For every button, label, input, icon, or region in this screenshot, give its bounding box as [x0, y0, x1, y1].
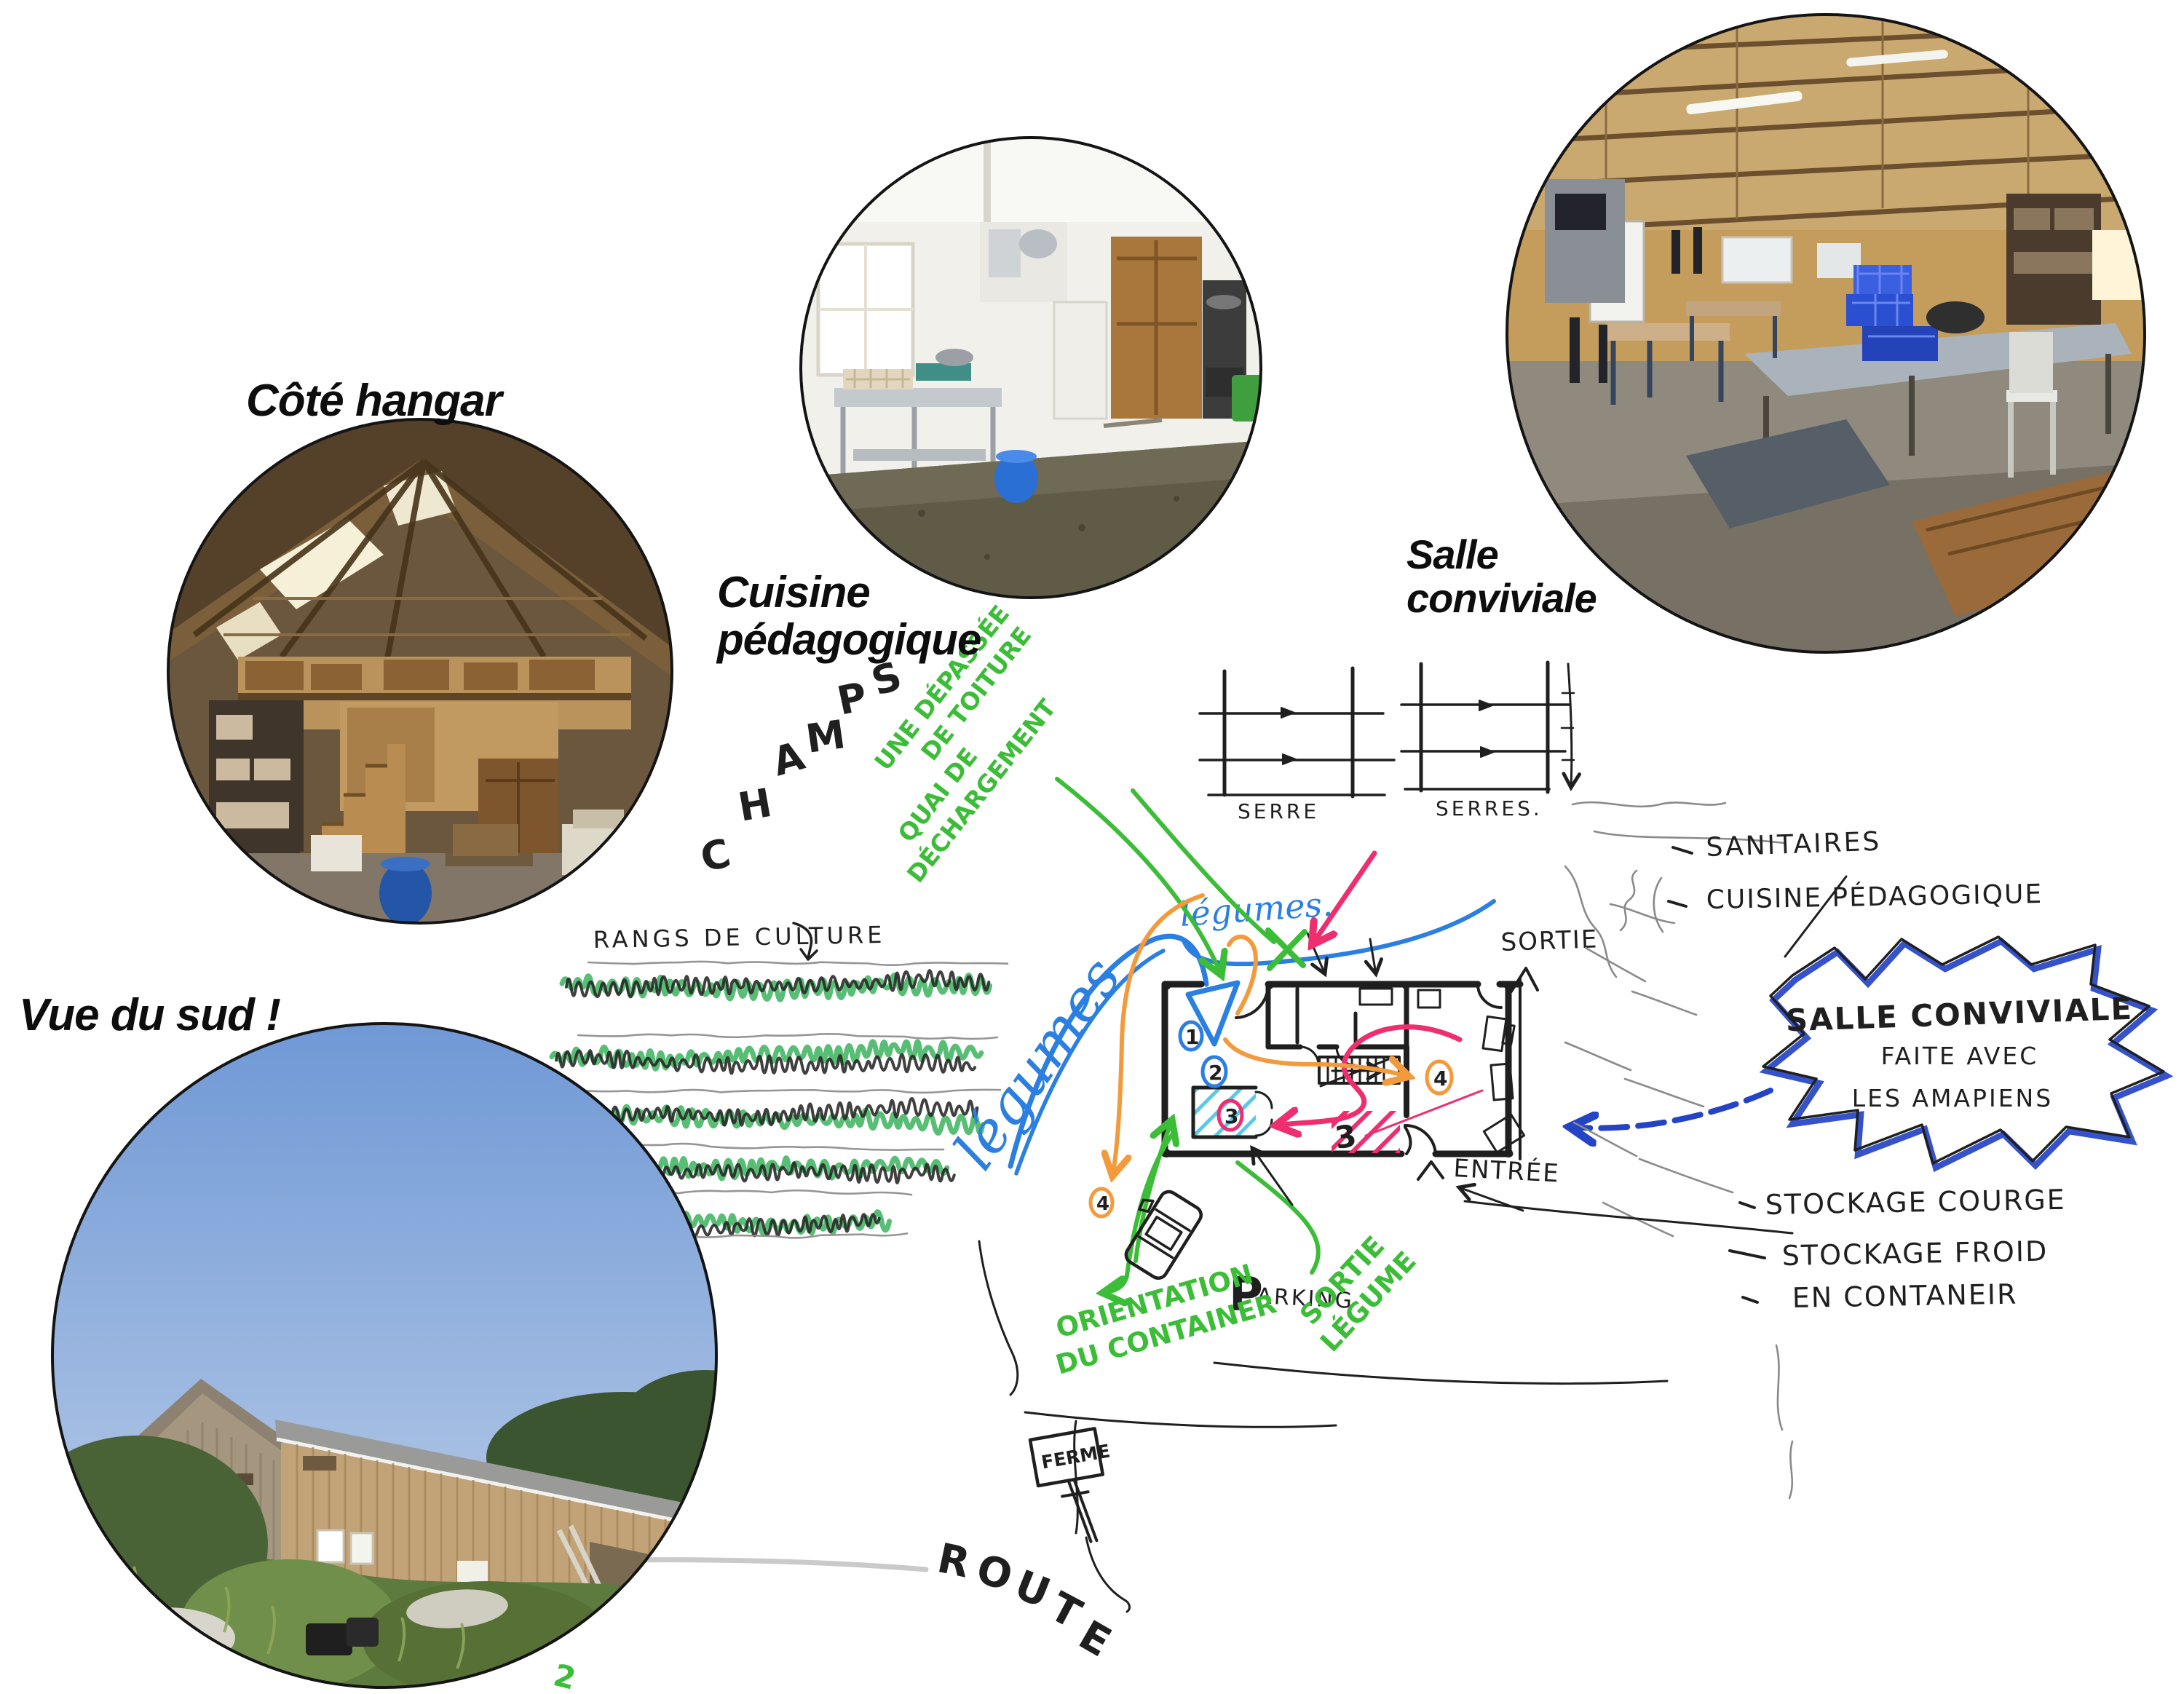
- door-swing-sortie: [1478, 984, 1501, 1008]
- far-houses: [50, 1559, 119, 1625]
- svg-text:H: H: [735, 780, 775, 831]
- svg-text:A: A: [767, 732, 810, 785]
- stockage-dash3: [1743, 1297, 1757, 1302]
- photo-cuisine: [798, 135, 1264, 601]
- serre-label: SERRE: [1238, 799, 1319, 823]
- label-vue-du-sud: Vue du sud !: [19, 992, 280, 1040]
- door-swing-topleft: [1236, 984, 1268, 1018]
- room-side-walls: [1268, 984, 1406, 1047]
- svg-text:1: 1: [1185, 1025, 1199, 1049]
- entree-label: ENTRÉE: [1453, 1153, 1561, 1189]
- label-salle-conviviale: Salle conviviale: [1406, 533, 1597, 621]
- sortie-caret: [1511, 968, 1538, 992]
- stockage-conteneur-label: EN CONTANEIR: [1792, 1278, 2017, 1314]
- photo-salle-conviviale: [1504, 12, 2148, 655]
- cuisine-pedagogique-label: CUISINE PÉDAGOGIQUE: [1706, 879, 2043, 915]
- serres-label: SERRES.: [1436, 796, 1543, 820]
- ferme-sign: FERME: [1030, 1427, 1125, 1549]
- serre-right-symbol: [1401, 662, 1569, 792]
- label-cuisine-pedagogique: Cuisine pédagogique: [717, 569, 981, 664]
- svg-text:SALLE CONVIVIALE: SALLE CONVIVIALE: [1785, 991, 2134, 1039]
- serre-rail-extension: [1568, 664, 1572, 788]
- stockage-dash1: [1740, 1203, 1754, 1208]
- green-flow-sortie-legumes: [1238, 1163, 1318, 1273]
- svg-text:FAITE AVEC: FAITE AVEC: [1881, 1042, 2039, 1070]
- svg-text:4: 4: [1433, 1066, 1447, 1091]
- entree-caret: [1418, 1162, 1443, 1179]
- photo-vue-du-sud: [50, 1021, 719, 1690]
- cuisine-dash: [1669, 901, 1686, 906]
- door-swing-entree: [1405, 1125, 1436, 1154]
- svg-text:O: O: [971, 1545, 1018, 1601]
- svg-text:4: 4: [1096, 1193, 1109, 1215]
- fixture-wc: [1418, 990, 1440, 1008]
- label-cote-hangar: Côté hangar: [246, 377, 502, 426]
- sanitaires-dash: [1673, 847, 1692, 853]
- dark-blue-arrow-salle: [1570, 1091, 1770, 1128]
- svg-text:3: 3: [1224, 1104, 1238, 1128]
- svg-text:2: 2: [1208, 1061, 1222, 1085]
- svg-text:U: U: [1008, 1562, 1057, 1618]
- white-tarp: [97, 1607, 235, 1669]
- serre-left-symbol: [1200, 668, 1394, 796]
- car-sketch: [1112, 1182, 1204, 1281]
- stockage-froid-label: STOCKAGE FROID: [1781, 1235, 2048, 1272]
- svg-text:C: C: [696, 830, 735, 882]
- fixture-sink: [1360, 989, 1392, 1005]
- salle-tables: [1483, 1016, 1524, 1152]
- starburst-salle-conviviale: SALLE CONVIVIALE FAITE AVEC LES AMAPIENS: [1763, 937, 2167, 1168]
- serre-arrow-2: [1370, 939, 1376, 974]
- stockage-courge-label: STOCKAGE COURGE: [1765, 1184, 2066, 1221]
- sanitaires-label: SANITAIRES: [1706, 827, 1882, 863]
- photo-hangar: [165, 416, 675, 926]
- champs-label: C H A M P S: [696, 652, 907, 881]
- sortie-label: SORTIE: [1500, 925, 1599, 957]
- svg-text:LES AMAPIENS: LES AMAPIENS: [1852, 1084, 2053, 1112]
- room-partitions: [1297, 989, 1356, 1047]
- svg-text:R: R: [933, 1535, 974, 1588]
- svg-text:E: E: [1071, 1612, 1119, 1666]
- stockage-dash2: [1730, 1251, 1765, 1258]
- farm-plan-sheet: C H A M P S UNE DÉPASSÉE DE TOITURE QUAI…: [0, 0, 2184, 1694]
- orientation-container-label: ORIENTATION DU CONTAINER: [1042, 1254, 1280, 1381]
